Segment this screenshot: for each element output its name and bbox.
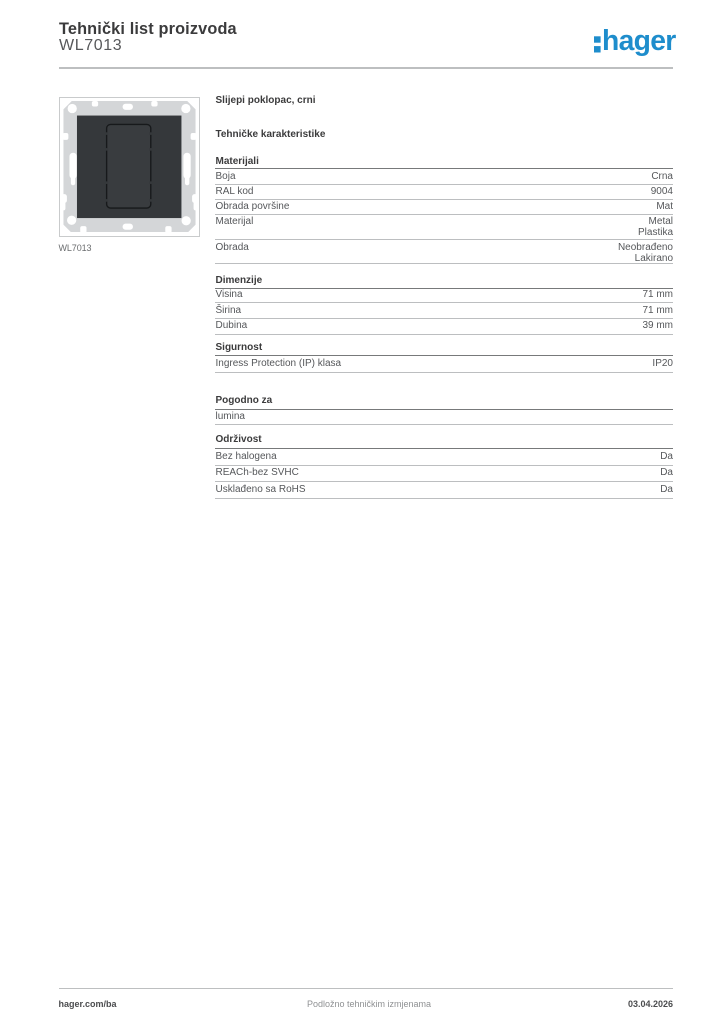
- svg-text:hager: hager: [602, 24, 676, 56]
